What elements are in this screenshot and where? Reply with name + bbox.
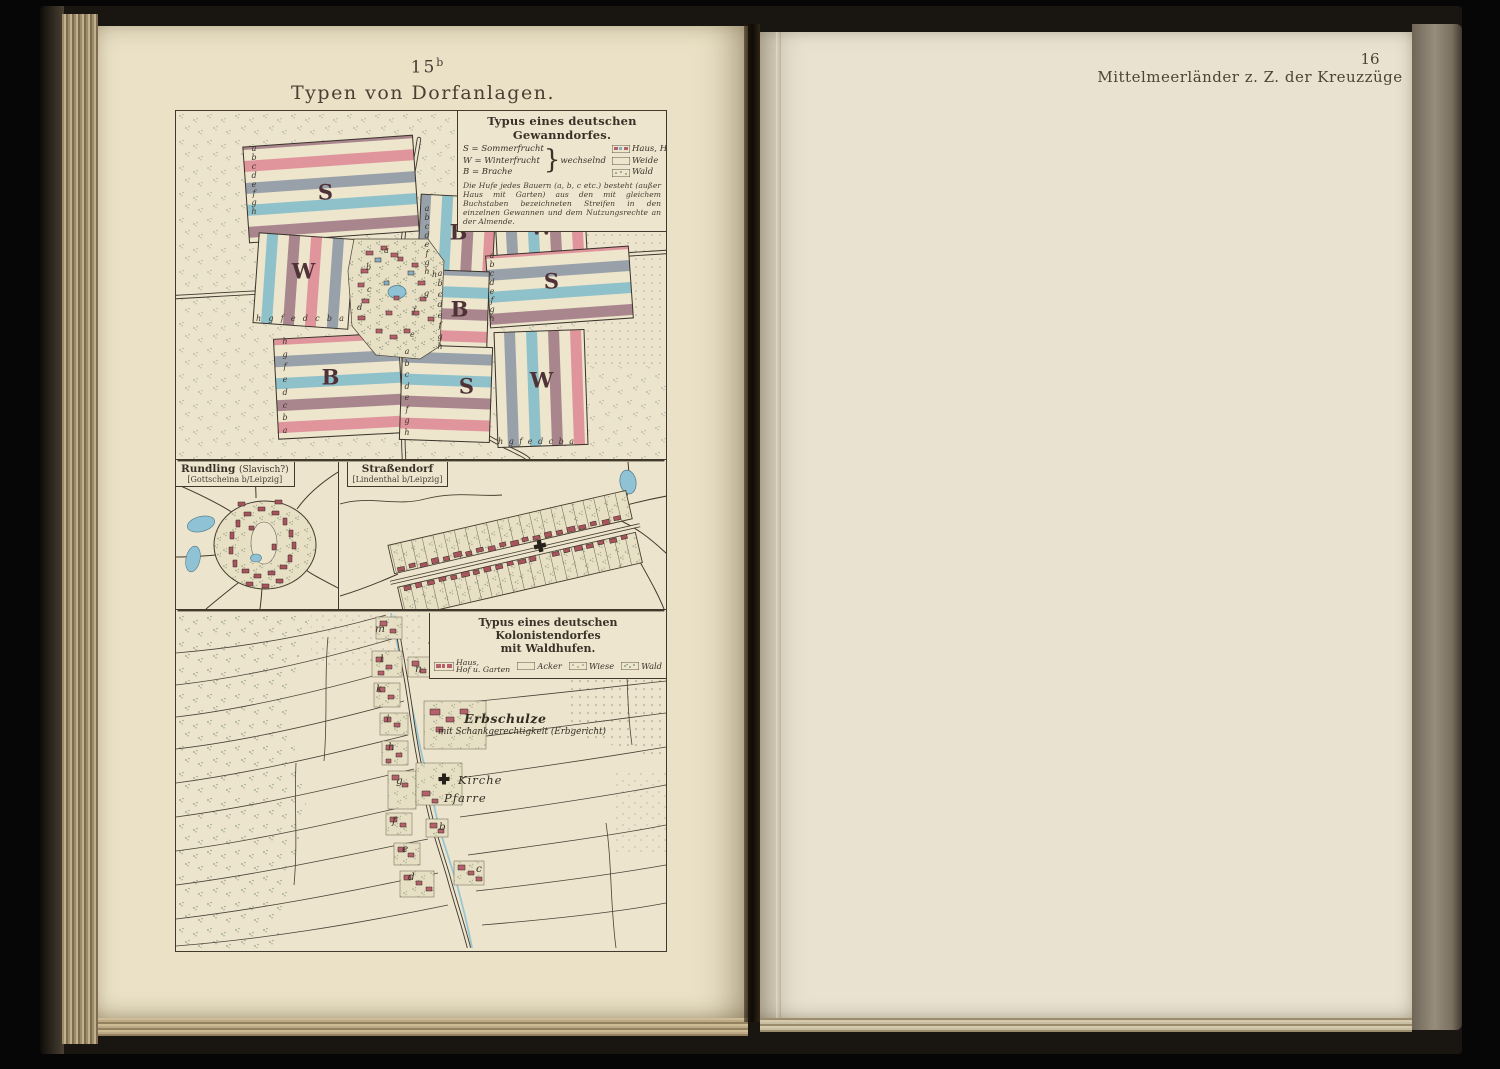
hufe-letter: b <box>439 821 446 833</box>
village-letter: a <box>384 246 389 255</box>
village-letter: e <box>410 330 415 339</box>
rundling-subtitle: [Gottscheina b/Leipzig] <box>181 475 289 484</box>
strip-letter: b <box>559 437 564 446</box>
strip-letter: b <box>437 279 442 288</box>
strip-letter: g <box>251 198 256 207</box>
strip-letter: d <box>404 382 409 391</box>
legend-area-row: Wald <box>612 167 666 178</box>
legend-area-row: Weide <box>612 156 666 167</box>
book-cover-left-edge <box>40 6 64 1054</box>
wald-swatch-icon <box>612 169 630 177</box>
pfarre-label: Pfarre <box>444 791 487 805</box>
legend-area-label: Haus, Hof u. Garten <box>632 144 666 155</box>
legend-title-line2: mit Waldhufen. <box>434 642 662 655</box>
legend-crop-row: S = Sommerfrucht <box>463 144 544 155</box>
book-scan: 16 Mittelmeerländer z. Z. der Kreuzzüge … <box>0 0 1500 1069</box>
legend-item-label: Wiese <box>589 661 614 671</box>
strip-letter: d <box>282 388 287 397</box>
right-page <box>760 32 1412 1018</box>
rundling-map: Rundling (Slavisch?) [Gottscheina b/Leip… <box>176 462 339 609</box>
gewann-letter: S <box>544 268 560 293</box>
strip-letter: g <box>404 416 409 425</box>
hufe-letter: c <box>476 863 482 875</box>
strip-letter: f <box>406 405 409 414</box>
wiese-swatch-icon <box>569 662 587 670</box>
strip-letters: abcdefgh <box>249 144 259 214</box>
strip-letter: h <box>256 314 261 323</box>
strip-letter: a <box>252 144 257 153</box>
strassendorf-label-box: Straßendorf [Lindenthal b/Leipzig] <box>347 462 449 487</box>
strip-letter: a <box>569 437 574 446</box>
strip-letter: f <box>426 249 429 258</box>
legend-areas: Haus, Hof u. Garten Weide Wald } <box>612 144 666 178</box>
right-page-header: Mittelmeerländer z. Z. der Kreuzzüge <box>1090 68 1410 86</box>
page-crease <box>776 32 781 1018</box>
hufe-letter: l <box>380 653 383 665</box>
strip-letter: a <box>339 314 344 323</box>
weide-swatch-icon <box>612 157 630 165</box>
strip-letter: h <box>437 342 442 351</box>
strip-letter: h <box>489 314 494 323</box>
brace-glyph: } <box>544 149 561 172</box>
strip-letter: d <box>489 278 494 287</box>
acker-swatch-icon <box>517 662 535 670</box>
legend-title: Typus eines deutschen Gewanndorfes. <box>463 114 661 142</box>
legend-note: Die Hufe jedes Bauern (a, b, c etc.) bes… <box>463 181 661 227</box>
strip-letter: e <box>528 437 533 446</box>
legend-items: Haus,Hof u. Garten Acker Wiese Wald <box>434 659 662 675</box>
strip-letter: c <box>438 290 442 299</box>
legend-item-label: Wald <box>641 661 662 671</box>
strip-letter: c <box>315 314 319 323</box>
strip-letters: hgfedcba <box>280 337 290 435</box>
book-gutter <box>744 24 760 1022</box>
strip-letter: c <box>283 401 287 410</box>
strip-letter: d <box>538 437 543 446</box>
legend-area-label: Wald <box>632 167 653 178</box>
hufe-letter: n <box>415 663 422 675</box>
strip-letter: e <box>490 287 495 296</box>
strip-letter: e <box>283 375 288 384</box>
rundling-label-box: Rundling (Slavisch?) [Gottscheina b/Leip… <box>176 462 295 487</box>
gewann-letter: S <box>459 373 475 398</box>
strip-letters: hgfedcba <box>498 437 574 446</box>
village-letter: f <box>413 306 416 315</box>
legend-item-label: Hof u. Garten <box>456 665 510 674</box>
gewann-letter: S <box>318 179 334 204</box>
legend-item-acker: Acker <box>517 661 562 671</box>
kirche-label: Kirche <box>458 773 502 787</box>
strip-letter: f <box>439 321 442 330</box>
strip-letter: d <box>424 231 429 240</box>
strip-letter: f <box>253 189 256 198</box>
page-stack-edge-bottom-right <box>760 1016 1412 1032</box>
strip-letter: b <box>282 413 287 422</box>
legend-area-row: Haus, Hof u. Garten <box>612 144 666 155</box>
hufe-letter: e <box>402 843 408 855</box>
rundling-title-note: (Slavisch?) <box>239 465 289 475</box>
strip-letter: b <box>489 260 494 269</box>
strip-letter: c <box>425 222 429 231</box>
haus-swatch-icon <box>434 662 454 671</box>
strip-letter: d <box>437 300 442 309</box>
strip-letter: g <box>282 350 287 359</box>
strip-letter: a <box>405 347 410 356</box>
gewanndorf-legend: Typus eines deutschen Gewanndorfes. S = … <box>457 111 666 232</box>
plate-number: 15b <box>388 56 468 78</box>
village-letter: h <box>432 270 437 279</box>
gewanndorf-map: S B W W S B B S W abcdefgh hgfedcba hgfe… <box>176 111 666 460</box>
strip-letter: g <box>509 437 514 446</box>
hufe-letter: i <box>386 713 389 725</box>
strip-letter: a <box>283 426 288 435</box>
strip-letter: e <box>252 180 257 189</box>
strip-letter: c <box>549 437 553 446</box>
strip-letter: a <box>438 269 443 278</box>
strip-letters: abcdefgh <box>487 251 497 313</box>
legend-item-haus: Haus,Hof u. Garten <box>434 659 510 675</box>
strip-letter: f <box>491 296 494 305</box>
plate-title: Typen von Dorfanlagen. <box>273 82 573 104</box>
strip-letters: abcdefgh <box>402 347 412 437</box>
strip-letter: b <box>251 153 256 162</box>
hufe-letter: f <box>392 815 396 827</box>
rundling-title: Rundling <box>181 463 235 475</box>
village-letter: b <box>366 263 371 272</box>
right-page-number: 16 <box>1340 50 1400 68</box>
legend-crop-brace-label: wechselnd <box>560 156 606 166</box>
strip-letter: d <box>251 171 256 180</box>
strip-letter: g <box>268 314 273 323</box>
strip-letter: a <box>425 204 430 213</box>
legend-crops: S = Sommerfrucht W = Winterfrucht B = Br… <box>463 144 606 178</box>
strip-letter: c <box>490 269 494 278</box>
strip-letter: d <box>303 314 308 323</box>
hufe-letter: k <box>376 683 382 695</box>
strassendorf-subtitle: [Lindenthal b/Leipzig] <box>353 475 443 484</box>
strip-letter: g <box>437 332 442 341</box>
legend-item-wald: Wald <box>621 661 662 671</box>
kolonistendorf-map: m l k i h g f e d n b c Erbschulze mit S… <box>176 613 666 948</box>
strip-letter: h <box>251 207 256 216</box>
strip-letters: hgfedcba <box>256 314 344 323</box>
hufe-letter: h <box>388 741 395 753</box>
strassendorf-map: Straßendorf [Lindenthal b/Leipzig] <box>340 462 667 609</box>
erbschulze-sublabel: mit Schankgerechtigkeit (Erbgericht) <box>438 727 606 737</box>
hufe-letter: d <box>408 871 415 883</box>
village-letter: c <box>367 285 371 294</box>
village-letter: g <box>424 289 429 298</box>
strip-letter: e <box>291 314 296 323</box>
strip-letter: g <box>424 258 429 267</box>
legend-item-label: Acker <box>537 661 562 671</box>
map-plate: S B W W S B B S W abcdefgh hgfedcba hgfe… <box>175 110 667 952</box>
legend-grid: S = Sommerfrucht W = Winterfrucht B = Br… <box>463 144 661 178</box>
strip-letter: a <box>490 251 495 260</box>
gewann-letter: B <box>451 296 470 321</box>
strip-letter: c <box>252 162 256 171</box>
strip-letter: e <box>425 240 430 249</box>
strip-letters: abcdefgh <box>435 269 445 351</box>
gewann-letter: W <box>292 258 317 283</box>
gewann-letter: B <box>322 364 341 389</box>
plate-number-main: 15 <box>411 58 437 78</box>
strip-letter: b <box>424 213 429 222</box>
hufe-letter: m <box>375 623 385 635</box>
legend-area-label: Weide <box>632 156 658 167</box>
strip-letter: b <box>327 314 332 323</box>
strip-letter: e <box>438 311 443 320</box>
legend-crop-row: B = Brache <box>463 167 544 178</box>
middle-row: Rundling (Slavisch?) [Gottscheina b/Leip… <box>176 462 666 610</box>
strip-letter: b <box>404 359 409 368</box>
legend-item-wiese: Wiese <box>569 661 614 671</box>
plate-number-suffix: b <box>436 56 445 69</box>
village-letter: d <box>357 303 362 312</box>
legend-crop-row: W = Winterfrucht <box>463 156 544 167</box>
strip-letter: h <box>404 428 409 437</box>
strip-letter: f <box>284 362 287 371</box>
strip-letter: h <box>424 267 429 276</box>
erbschulze-label: Erbschulze <box>464 711 546 726</box>
strip-letter: h <box>282 337 287 346</box>
gewann-letter: W <box>530 367 555 392</box>
book-cover-right-edge <box>1412 24 1462 1030</box>
strassendorf-title: Straßendorf <box>353 463 443 475</box>
strip-letter: f <box>519 437 522 446</box>
legend-title-line1: Typus eines deutschen Kolonistendorfes <box>434 616 662 642</box>
hufe-letter: g <box>396 775 403 787</box>
strip-letters: abcdefgh <box>422 204 432 258</box>
wald-swatch-icon <box>621 662 639 670</box>
strip-letter: c <box>405 370 409 379</box>
strip-letter: f <box>281 314 284 323</box>
strip-letter: e <box>405 393 410 402</box>
kolonistendorf-legend: Typus eines deutschen Kolonistendorfes m… <box>429 613 666 679</box>
strip-letter: g <box>489 305 494 314</box>
page-stack-edge-left <box>62 14 98 1044</box>
strip-letter: h <box>498 437 503 446</box>
haus-swatch-icon <box>612 145 630 153</box>
